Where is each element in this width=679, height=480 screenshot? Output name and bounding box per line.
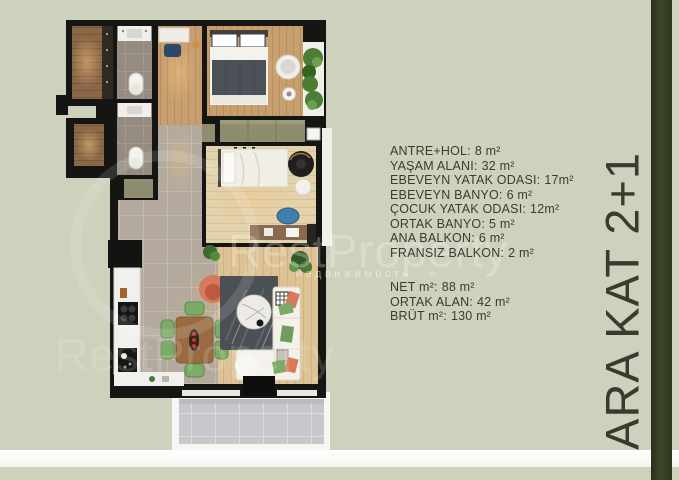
summary-row: NET m²:88 m² [390, 280, 574, 295]
room-child-bedroom [206, 146, 316, 254]
storage-cabinet [124, 179, 153, 198]
main-balcony [172, 392, 330, 450]
area-label: FRANSIZ BALKON: [390, 246, 504, 260]
area-label: ORTAK BANYO: [390, 217, 485, 231]
desk-chair [277, 208, 299, 224]
area-value: 12m² [530, 202, 559, 216]
area-value: 17m² [544, 173, 573, 187]
area-value: 5 m² [489, 217, 515, 231]
room-closet-1 [71, 26, 113, 99]
console-table [159, 28, 189, 42]
area-row: ANA BALKON:6 m² [390, 231, 574, 246]
summary-label: BRÜT m²: [390, 309, 447, 323]
accent-bar [651, 0, 672, 480]
tv-unit [243, 376, 275, 396]
area-row: EBEVEYN YATAK ODASI:17m² [390, 173, 574, 188]
summary-label: NET m²: [390, 280, 438, 294]
floor-plan-page: RestProperty RestProperty недвижимость ®… [0, 0, 679, 480]
area-label: YAŞAM ALANI: [390, 159, 478, 173]
side-ledge [322, 128, 332, 246]
area-row: ANTRE+HOL:8 m² [390, 144, 574, 159]
area-label: EBEVEYN YATAK ODASI: [390, 173, 540, 187]
area-value: 6 m² [507, 188, 533, 202]
area-label: ÇOCUK YATAK ODASI: [390, 202, 526, 216]
summary-value: 42 m² [477, 295, 510, 309]
room-bathroom-1 [117, 26, 152, 99]
window [182, 390, 240, 396]
area-label: ANA BALKON: [390, 231, 475, 245]
area-value: 6 m² [479, 231, 505, 245]
lamp-icon [193, 42, 200, 49]
bench [164, 44, 181, 57]
summary-row: BRÜT m²:130 m² [390, 309, 574, 324]
room-closet-2 [74, 124, 104, 166]
kitchen-sink-icon [118, 348, 137, 372]
bottom-strip [0, 450, 679, 467]
cooktop-icon [118, 302, 138, 325]
area-row: EBEVEYN BANYO:6 m² [390, 188, 574, 203]
window [277, 390, 317, 396]
pouf [295, 179, 311, 195]
wall-shaft [56, 95, 68, 115]
summary-value: 130 m² [451, 309, 491, 323]
dining-chair [185, 364, 204, 377]
office-chair [288, 151, 314, 177]
desk [250, 225, 316, 240]
area-row: ÇOCUK YATAK ODASI:12m² [390, 202, 574, 217]
room-bathroom-2 [117, 103, 152, 175]
area-list: ANTRE+HOL:8 m² YAŞAM ALANI:32 m² EBEVEYN… [390, 144, 574, 324]
floor-plan-illustration [55, 10, 340, 460]
summary-value: 88 m² [442, 280, 475, 294]
area-row: YAŞAM ALANI:32 m² [390, 159, 574, 174]
dining-chair [161, 341, 174, 359]
dining-chair [161, 320, 174, 338]
summary-list: NET m²:88 m² ORTAK ALAN:42 m² BRÜT m²:13… [390, 280, 574, 324]
summary-row: ORTAK ALAN:42 m² [390, 295, 574, 310]
ac-unit [307, 128, 320, 140]
dining-chair [185, 302, 204, 315]
area-label: EBEVEYN BANYO: [390, 188, 503, 202]
area-row: FRANSIZ BALKON:2 m² [390, 246, 574, 261]
area-value: 2 m² [508, 246, 534, 260]
coffee-table [237, 295, 271, 329]
summary-label: ORTAK ALAN: [390, 295, 473, 309]
area-label: ANTRE+HOL: [390, 144, 471, 158]
single-bed [218, 149, 288, 187]
area-row: ORTAK BANYO:5 m² [390, 217, 574, 232]
area-value: 8 m² [475, 144, 501, 158]
room-living-kitchen [108, 240, 318, 396]
area-value: 32 m² [482, 159, 515, 173]
floor-title: ARA KAT 2+1 [595, 152, 650, 450]
french-balcony [302, 42, 324, 116]
room-hall [158, 26, 202, 125]
room-master-bedroom [205, 26, 303, 116]
